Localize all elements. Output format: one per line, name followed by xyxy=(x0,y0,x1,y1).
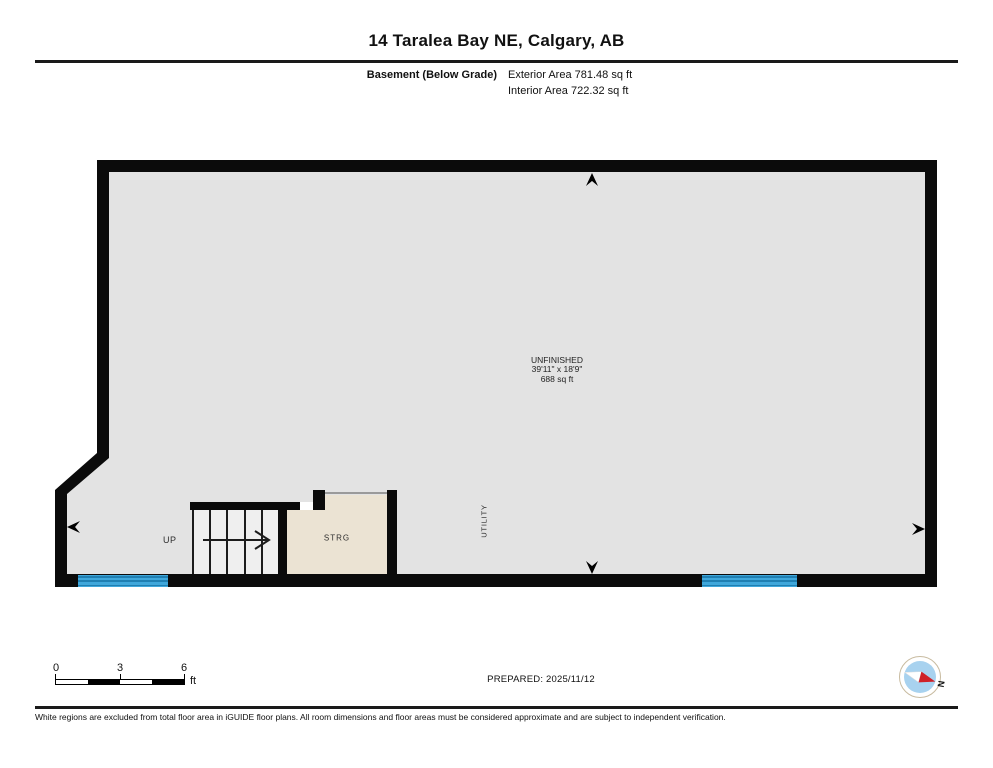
exterior-area-label: Exterior Area 781.48 sq ft xyxy=(508,69,632,81)
footer-disclaimer: White regions are excluded from total fl… xyxy=(35,712,958,722)
compass-icon xyxy=(898,655,942,699)
stairs-up-label: UP xyxy=(163,535,177,545)
window-pane-line xyxy=(78,585,168,587)
plan-floor-area xyxy=(0,0,993,768)
scale-segment xyxy=(88,680,120,684)
header-divider xyxy=(35,60,958,63)
window-pane-line xyxy=(702,576,797,578)
floor-plan-page: 14 Taralea Bay NE, Calgary, AB Basement … xyxy=(0,0,993,768)
floor-name-label: Basement (Below Grade) xyxy=(0,69,497,81)
scale-segment xyxy=(120,680,152,684)
interior-area-label: Interior Area 722.32 sq ft xyxy=(508,85,628,97)
window-pane-line xyxy=(78,580,168,582)
storage-room-label: STRG xyxy=(324,534,350,543)
utility-room-label: UTILITY xyxy=(480,504,489,538)
window-pane-line xyxy=(702,585,797,587)
scale-tick-label-6: 6 xyxy=(181,662,187,674)
scale-bar xyxy=(55,679,185,685)
window-right xyxy=(702,575,797,587)
window-left xyxy=(78,575,168,587)
prepared-date-label: PREPARED: 2025/11/12 xyxy=(487,674,595,685)
scale-unit-label: ft xyxy=(190,675,196,687)
room-area: 688 sq ft xyxy=(531,375,583,384)
storage-wall-post xyxy=(313,490,325,510)
scale-segment xyxy=(56,680,88,684)
stair-direction-arrow xyxy=(200,528,276,552)
footer-divider xyxy=(35,706,958,709)
page-title: 14 Taralea Bay NE, Calgary, AB xyxy=(0,31,993,51)
window-pane-line xyxy=(702,580,797,582)
window-pane-line xyxy=(78,576,168,578)
scale-tick-label-0: 0 xyxy=(53,662,59,674)
storage-opening-line xyxy=(325,492,387,494)
scale-tick-label-3: 3 xyxy=(117,662,123,674)
stair-storage-divider-wall xyxy=(278,502,287,574)
scale-segment xyxy=(152,680,184,684)
storage-door-opening xyxy=(300,502,313,510)
storage-right-wall xyxy=(387,490,397,574)
unfinished-room-label: UNFINISHED 39'11" x 18'9" 688 sq ft xyxy=(531,356,583,384)
